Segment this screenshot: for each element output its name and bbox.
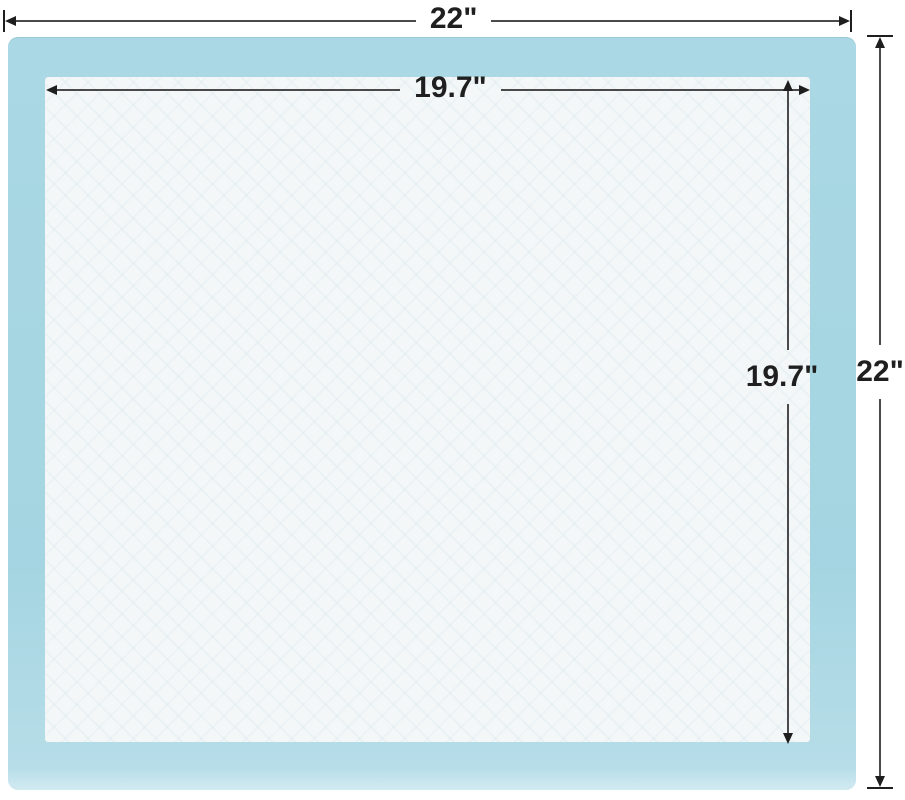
arrow-left-icon <box>46 85 57 95</box>
arrow-down-icon <box>783 733 793 744</box>
dimension-line <box>16 20 416 22</box>
dimension-inner-width: 19.7" <box>46 78 810 102</box>
dimension-line <box>501 89 799 91</box>
pad-inner-core <box>45 77 810 742</box>
dimension-inner-height: 19.7" <box>774 80 802 744</box>
dimension-line <box>787 404 789 733</box>
dimension-line <box>879 399 881 776</box>
arrow-right-icon <box>839 16 850 26</box>
dimension-outer-height: 22" <box>866 35 894 789</box>
arrow-left-icon <box>5 16 16 26</box>
arrow-up-icon <box>875 37 885 48</box>
outer-height-label: 22" <box>856 345 904 399</box>
dimension-outer-width: 22" <box>3 9 852 33</box>
inner-height-label: 19.7" <box>746 350 819 404</box>
dimension-line <box>491 20 839 22</box>
dimension-line <box>57 89 400 91</box>
dimension-line <box>879 48 881 345</box>
pad-outer <box>8 37 856 790</box>
dimension-line <box>787 91 789 350</box>
inner-width-label: 19.7" <box>400 73 501 103</box>
outer-width-label: 22" <box>416 4 492 34</box>
arrow-down-icon <box>875 776 885 787</box>
diagram-canvas: 22" 22" 19.7" 19.7" <box>0 0 905 800</box>
dimension-tick-right <box>850 10 852 32</box>
arrow-up-icon <box>783 80 793 91</box>
dimension-tick-bottom <box>867 787 893 789</box>
